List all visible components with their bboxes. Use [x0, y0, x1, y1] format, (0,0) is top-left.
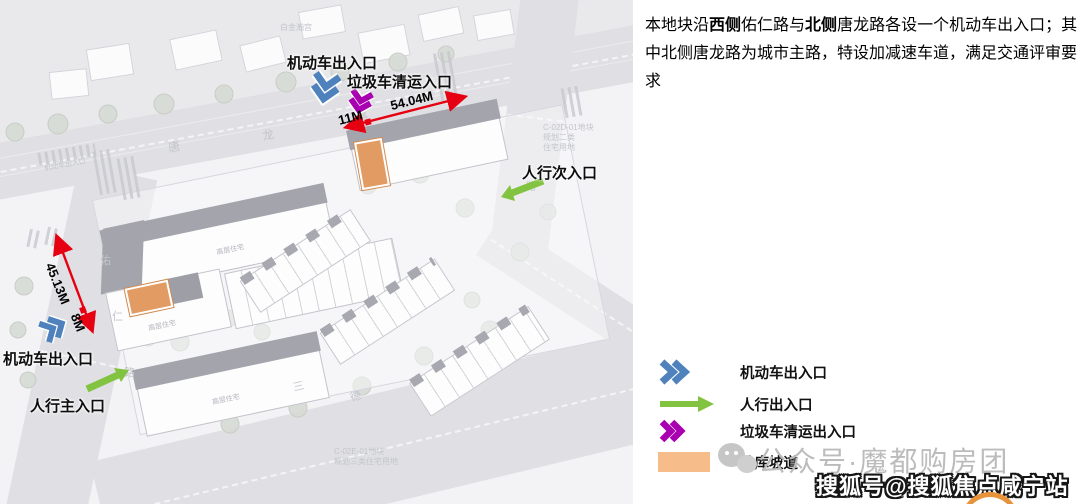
pedestrian-main-arrow-icon: [87, 368, 129, 389]
screenshot-root: 高层住宅 高层住宅 高层住宅 白金瀚宫 机动车出入口 C-02D: [0, 0, 1080, 504]
legend-label: 垃圾车清运出入口: [740, 421, 856, 442]
pedestrian-main-label: 人行主入口: [30, 395, 105, 416]
description-paragraph: 本地块沿西侧佑仁路与北侧唐龙路各设一个机动车出入口；其中北侧唐龙路为城市主路，特…: [645, 12, 1080, 96]
blue-double-chevron-icon: [658, 359, 716, 385]
watermark-sohu: 搜狐号@搜狐焦点咸宁站: [816, 469, 1068, 501]
garbage-entrance-top-label: 垃圾车清运入口: [347, 71, 452, 92]
legend-label: 机动车出入口: [740, 362, 827, 383]
pedestrian-secondary-label: 人行次入口: [522, 162, 597, 183]
orange-ramp-swatch: [658, 452, 716, 472]
motor-entrance-top-label: 机动车出入口: [287, 52, 377, 73]
legend-row-pedestrian: 人行出入口: [658, 393, 813, 415]
paragraph-segment-bold: 北侧: [805, 17, 837, 34]
wechat-icon: [718, 441, 762, 481]
paragraph-segment: 佑仁路与: [741, 17, 805, 34]
legend-label: 人行出入口: [740, 394, 813, 415]
pedestrian-secondary-arrow-icon: [501, 181, 543, 201]
paragraph-segment-bold: 西侧: [709, 17, 741, 34]
legend-row-motor: 机动车出入口: [658, 358, 827, 386]
site-plan: 高层住宅 高层住宅 高层住宅 白金瀚宫 机动车出入口 C-02D: [0, 0, 633, 504]
paragraph-segment: 本地块沿: [645, 17, 709, 34]
green-arrow-icon: [658, 395, 716, 413]
motor-entrance-west-label: 机动车出入口: [3, 348, 93, 369]
purple-double-chevron-icon: [658, 419, 716, 443]
